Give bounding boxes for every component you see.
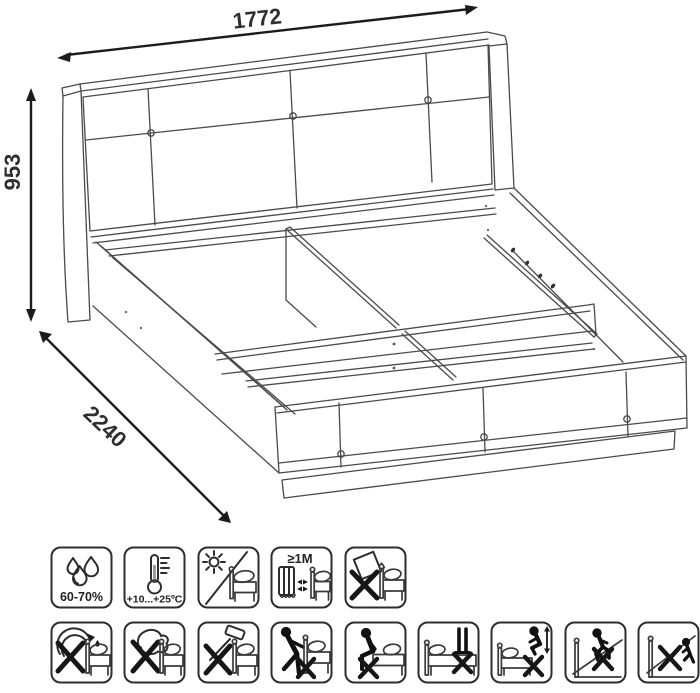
no-wet-cloth-icon (123, 621, 186, 684)
no-hammering-icon (197, 621, 260, 684)
left-side-rail (93, 306, 279, 473)
x-mark (454, 654, 471, 672)
bed-assembly-diagram-page: 1772 953 2240 (0, 0, 700, 693)
bed-glyph (85, 639, 110, 675)
no-walking-on-lifted-base-icon (564, 621, 627, 684)
thermometer-icon (148, 555, 169, 594)
no-dragging-icon (270, 621, 333, 684)
no-sitting-on-edge-icon (344, 621, 407, 684)
person-pulling-icon (282, 627, 304, 673)
cross-rail (215, 304, 596, 354)
x-mark (58, 643, 83, 671)
no-direct-sunlight-icon (197, 546, 260, 609)
dimension-length-label: 2240 (79, 401, 132, 453)
no-load-on-lifted-base-icon (637, 621, 700, 684)
temperature-range-label: +10...+25ºC (127, 594, 183, 606)
sun-icon (203, 551, 225, 573)
bed-glyph (379, 564, 404, 600)
care-icons-row-1: 60-70% +10...+25ºC (50, 546, 407, 609)
dimension-height: 953 (0, 88, 36, 322)
person-jumping-icon (530, 627, 540, 654)
temperature-range-icon: +10...+25ºC (123, 546, 186, 609)
care-icons-row-2 (50, 621, 700, 684)
right-side-rail (510, 188, 687, 428)
distance-arrows-icon (297, 580, 308, 592)
slash-line (206, 552, 247, 604)
no-tilting-wet-objects-icon (344, 546, 407, 609)
bed-glyph (232, 639, 257, 675)
humidity-range-icon: 60-70% (50, 546, 113, 609)
min-distance-label: ≥1M (288, 551, 313, 566)
x-mark (352, 572, 377, 598)
no-pouring-liquids-icon (50, 621, 113, 684)
x-mark (133, 642, 158, 671)
bed-glyph (160, 639, 184, 675)
person-on-base-icon (683, 638, 694, 662)
bed-technical-drawing: 1772 953 2240 (0, 0, 700, 540)
screw-dots (125, 205, 595, 370)
min-distance-from-heat-icon: ≥1M (270, 546, 333, 609)
headboard (62, 32, 514, 322)
x-mark (525, 657, 542, 675)
bed-glyph (310, 567, 331, 600)
water-drops-icon (68, 557, 99, 585)
center-divider (286, 227, 399, 325)
dimension-width-label: 1772 (231, 3, 282, 33)
no-standing-on-bed-icon (417, 621, 480, 684)
no-jumping-on-bed-icon (490, 621, 553, 684)
dimension-height-label: 953 (0, 154, 25, 191)
x-mark (660, 647, 680, 669)
legs-standing-icon (455, 629, 469, 653)
dimension-width: 1772 (57, 3, 478, 62)
radiator-icon (279, 567, 295, 597)
dimension-length: 2240 (39, 331, 231, 523)
bed-glyph (229, 567, 256, 601)
humidity-range-label: 60-70% (60, 590, 103, 604)
up-down-arrow-icon (544, 626, 550, 654)
